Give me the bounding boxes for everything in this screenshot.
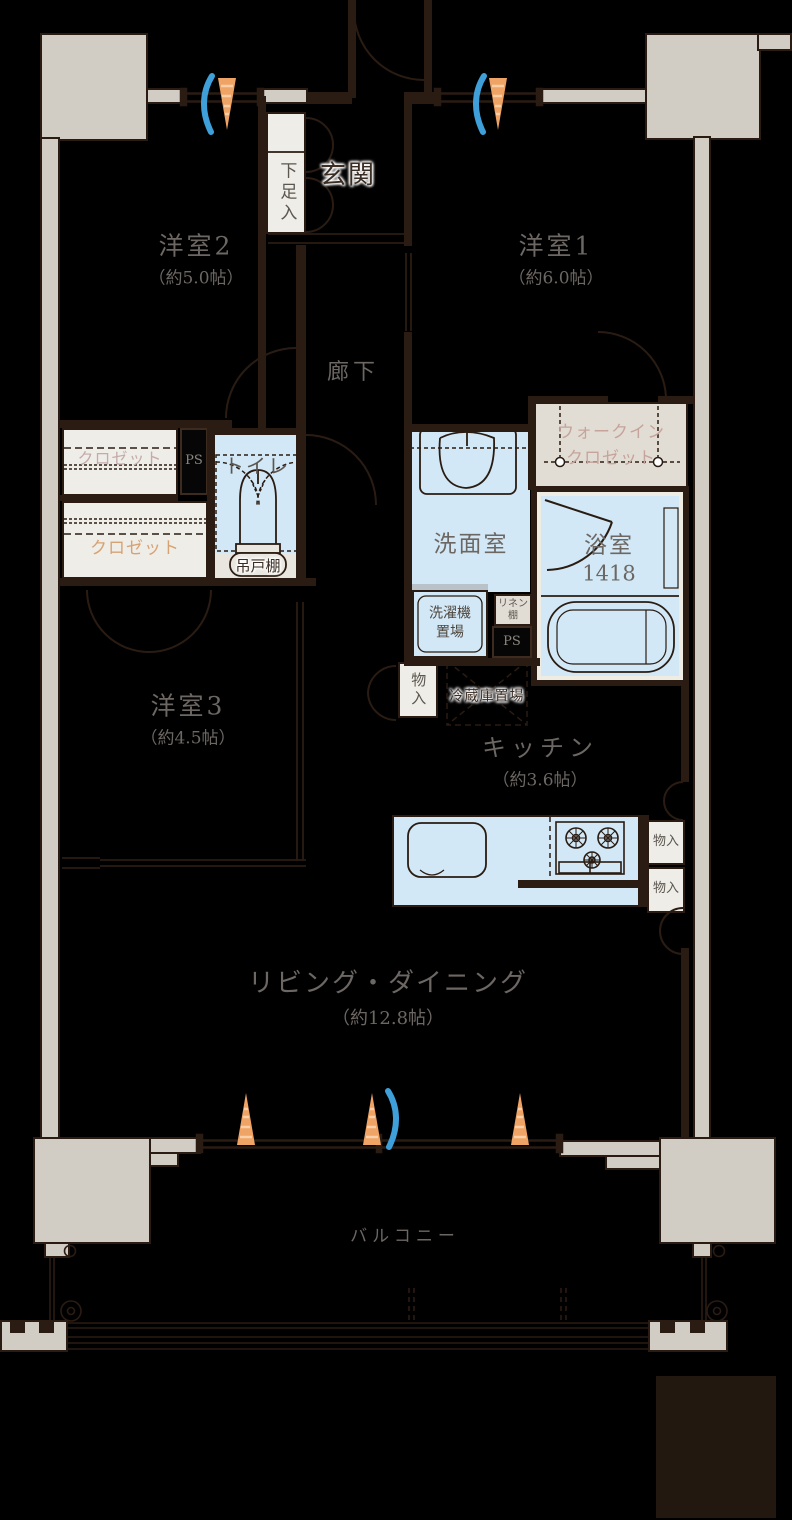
room-label-balcony: バルコニー bbox=[350, 1228, 460, 1247]
label-shoe-cabinet: 下足入 bbox=[277, 162, 296, 225]
label-washer-line1: 洗濯機 bbox=[429, 606, 471, 621]
room-size-yoshitsu1: （約6.0帖） bbox=[508, 270, 603, 289]
room-size-kitchen: （約3.6帖） bbox=[492, 772, 587, 791]
label-storage-k2: 物入 bbox=[653, 882, 679, 896]
label-linen-line2: 棚 bbox=[508, 611, 518, 622]
room-label-kitchen: キッチン bbox=[482, 735, 598, 761]
label-wic-line2: クロゼット bbox=[566, 450, 656, 469]
label-closet-2: クロゼット bbox=[90, 540, 180, 559]
floorplan: 玄関 下足入 洋室2 （約5.0帖） 洋室1 （約6.0帖） 廊下 クロゼット … bbox=[0, 0, 792, 1520]
label-wic-line1: ウォークイン bbox=[557, 424, 665, 443]
room-label-yoshitsu3: 洋室3 bbox=[151, 692, 226, 720]
label-ps-1: PS bbox=[185, 454, 203, 468]
label-closet-1: クロゼット bbox=[77, 450, 162, 468]
room-size-living: （約12.8帖） bbox=[332, 1009, 444, 1029]
label-linen-line1: リネン bbox=[498, 599, 528, 610]
room-size-bath: 1418 bbox=[582, 562, 635, 585]
label-fridge: 冷蔵庫置場 bbox=[450, 689, 525, 704]
room-label-bath: 浴室 bbox=[584, 533, 634, 558]
room-size-yoshitsu2: （約5.0帖） bbox=[148, 270, 243, 289]
room-label-yoshitsu2: 洋室2 bbox=[159, 232, 234, 260]
room-label-toilet: トイレ bbox=[224, 455, 290, 477]
room-label-yoshitsu1: 洋室1 bbox=[519, 232, 594, 260]
room-size-yoshitsu3: （約4.5帖） bbox=[140, 730, 235, 749]
label-ps-2: PS bbox=[503, 635, 521, 649]
label-tsuritodana: 吊戸棚 bbox=[235, 558, 280, 575]
label-storage-k1: 物入 bbox=[653, 835, 679, 849]
label-storage-hall: 物入 bbox=[410, 672, 427, 708]
room-label-rouka: 廊下 bbox=[327, 361, 379, 385]
room-label-senmen: 洗面室 bbox=[434, 532, 509, 557]
room-label-genkan: 玄関 bbox=[320, 162, 376, 191]
room-label-living: リビング・ダイニング bbox=[248, 970, 528, 999]
labels: 玄関 下足入 洋室2 （約5.0帖） 洋室1 （約6.0帖） 廊下 クロゼット … bbox=[0, 0, 792, 1520]
label-washer-line2: 置場 bbox=[436, 625, 464, 640]
